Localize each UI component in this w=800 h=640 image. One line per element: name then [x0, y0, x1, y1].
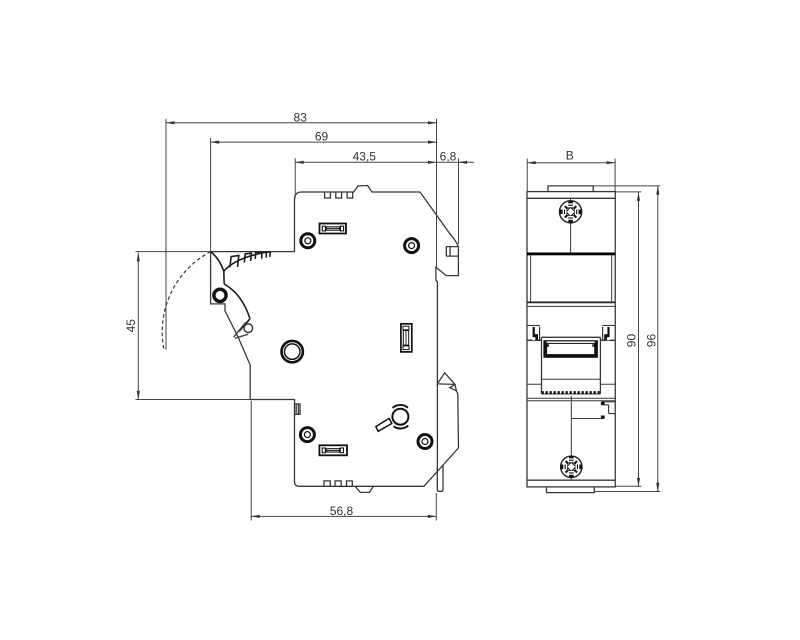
svg-text:83: 83 [294, 110, 308, 124]
svg-text:69: 69 [315, 129, 329, 143]
svg-text:B: B [566, 149, 574, 163]
svg-text:96: 96 [644, 334, 658, 348]
svg-text:6,8: 6,8 [440, 150, 457, 164]
svg-text:90: 90 [625, 334, 639, 348]
svg-text:56,8: 56,8 [330, 504, 354, 518]
svg-text:45: 45 [124, 319, 138, 333]
svg-text:43,5: 43,5 [353, 150, 377, 164]
